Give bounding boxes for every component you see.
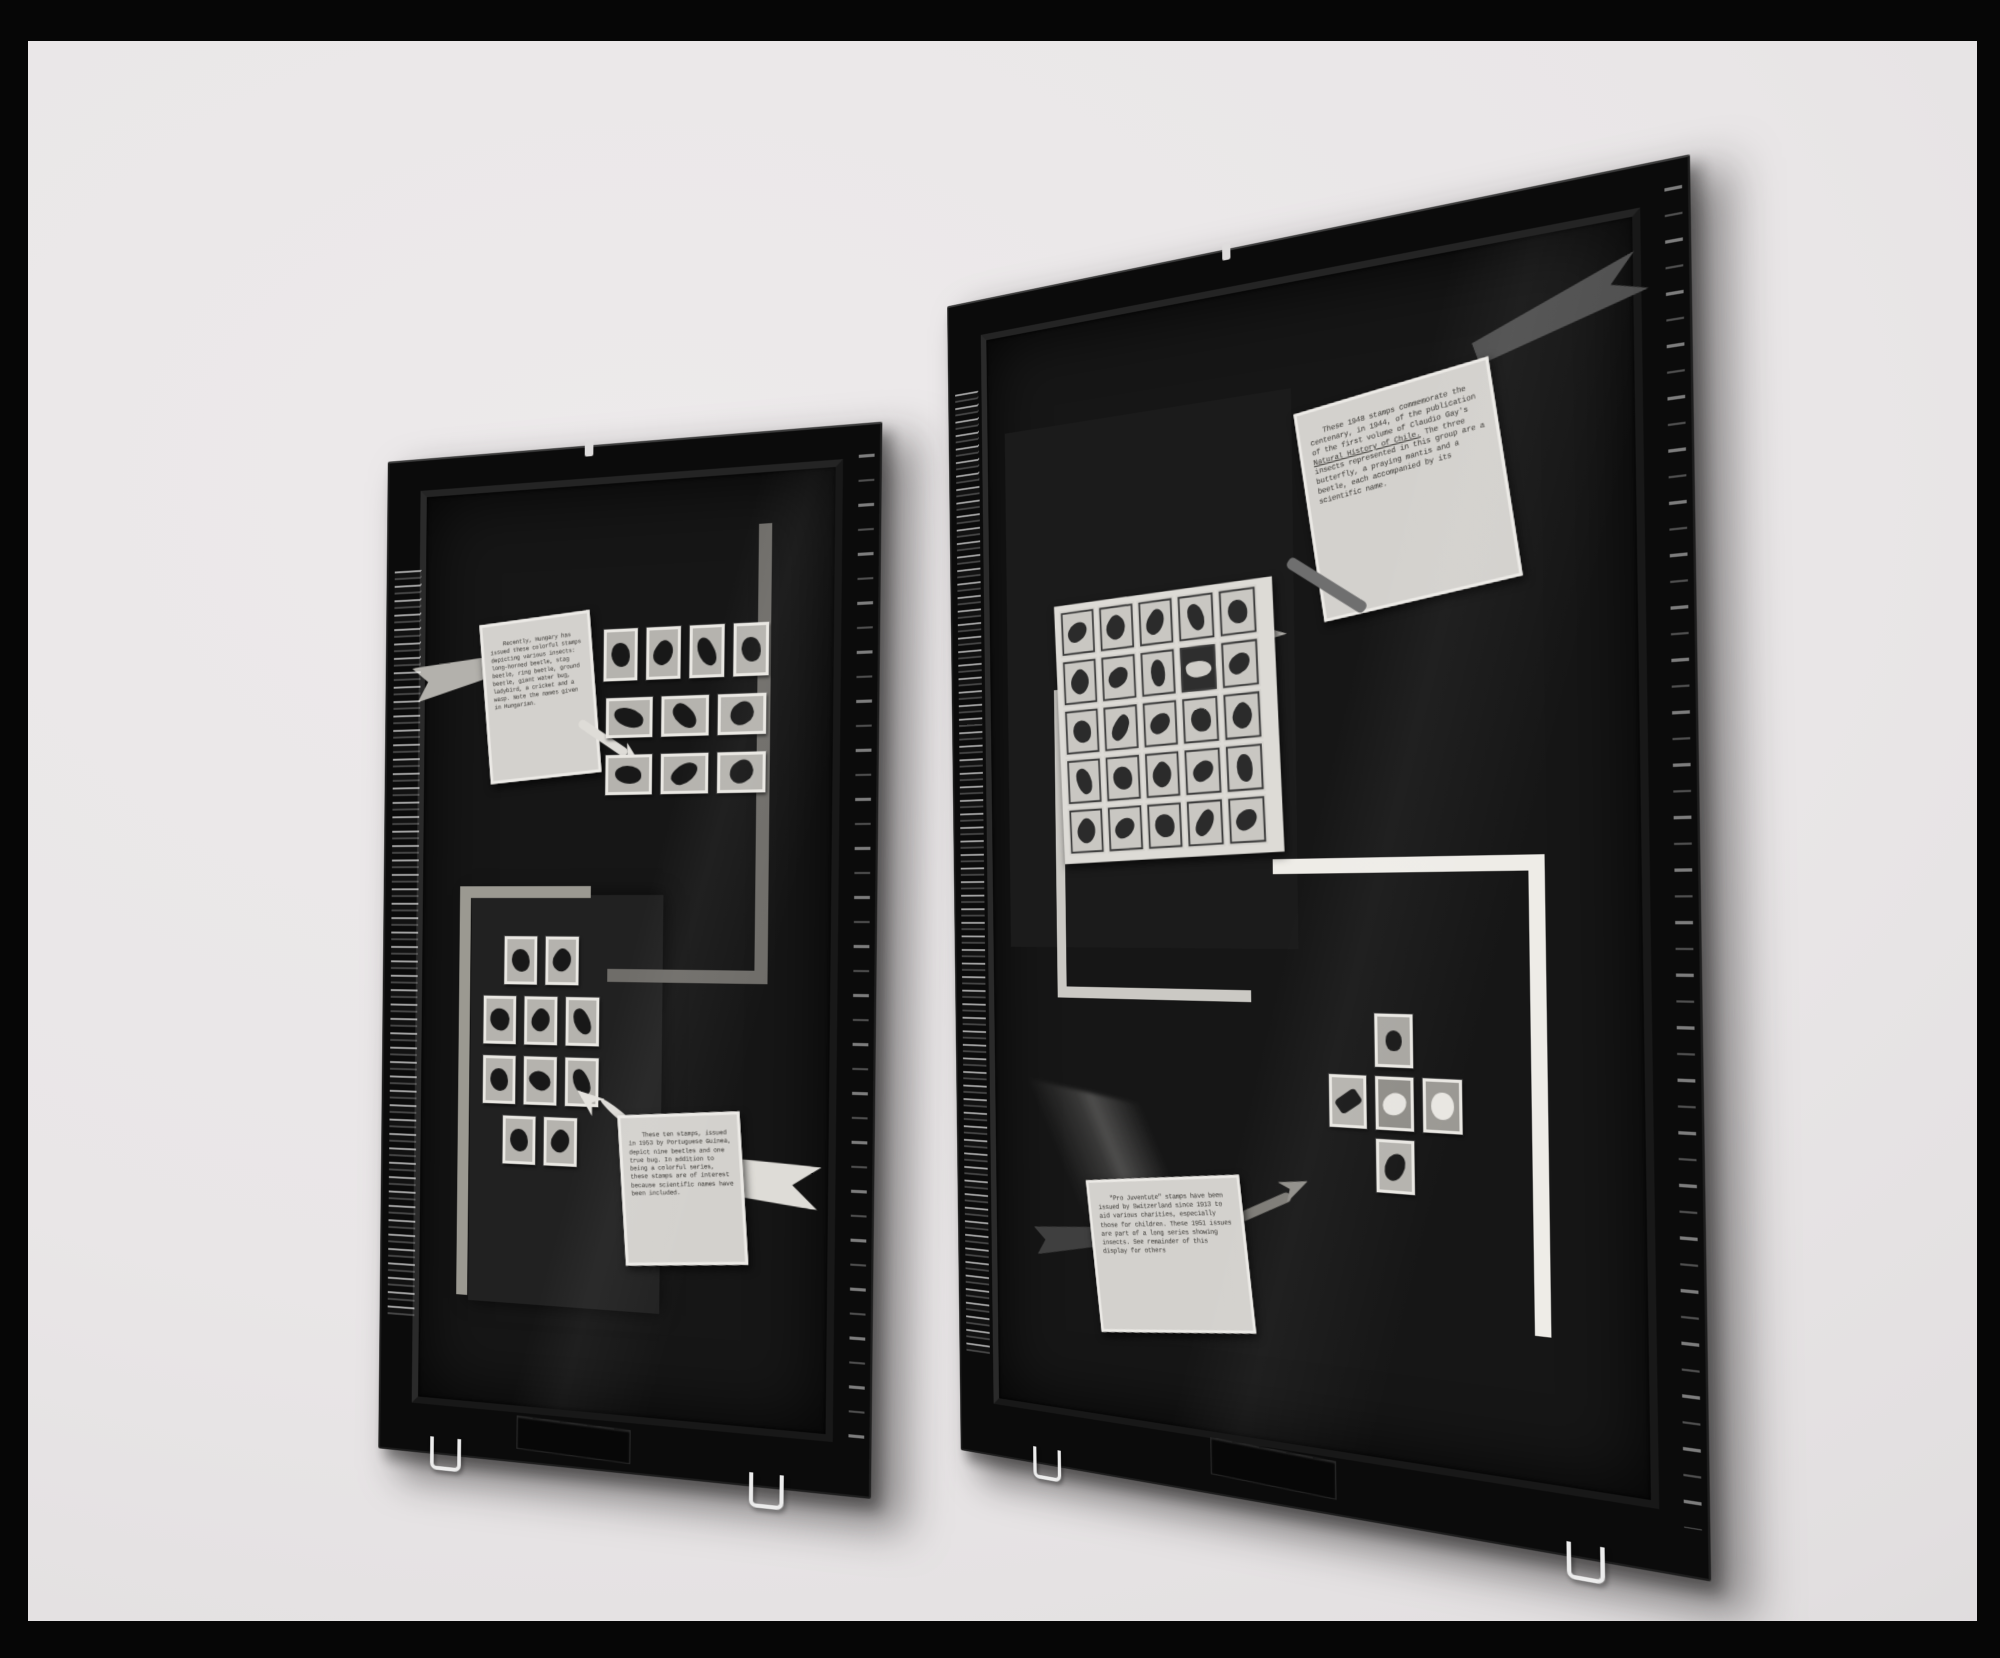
stamp-motif	[1380, 1150, 1410, 1184]
stamp-image	[1187, 799, 1224, 846]
stamp	[1097, 601, 1135, 653]
stamp-image	[1182, 696, 1219, 744]
stamp-motif	[1191, 707, 1211, 732]
stamp	[1104, 753, 1143, 804]
stamp-motif	[512, 949, 530, 971]
stamp-motif	[1113, 766, 1132, 790]
stamp-motif	[1105, 664, 1131, 692]
stamp	[1065, 756, 1103, 806]
stamp	[660, 753, 708, 795]
stamp	[1068, 806, 1106, 855]
stamp-motif	[1333, 1088, 1362, 1115]
stamp	[524, 996, 557, 1045]
stamp	[483, 996, 516, 1045]
caption-text: These 1948 stamps commemorate the centen…	[1309, 382, 1491, 509]
stamp-image	[1379, 1142, 1412, 1192]
caption-card-hungary: Recently, Hungary has issued these color…	[479, 610, 601, 785]
stamp-motif	[1184, 601, 1209, 633]
stamp-row	[483, 1055, 599, 1107]
stamp-row	[483, 996, 599, 1047]
stamp-image	[720, 696, 763, 732]
stamp-image	[1105, 755, 1140, 801]
stamp-image	[1138, 598, 1174, 646]
stamp-motif	[1155, 814, 1175, 838]
stamp-image	[1140, 649, 1176, 697]
stamp-image	[486, 1058, 513, 1101]
stamp-image	[664, 698, 706, 734]
stamp-motif	[547, 1127, 574, 1156]
stamp	[565, 997, 599, 1046]
stamp	[1217, 584, 1258, 638]
stamp-motif	[615, 766, 642, 784]
frame-reflection	[848, 454, 874, 1446]
stamp-motif	[487, 1006, 512, 1033]
stamp-motif	[1189, 757, 1216, 785]
stamp-motif	[526, 1066, 553, 1095]
stamp-motif	[548, 946, 575, 975]
caption-card-pro-juventute: "Pro Juventute" stamps have been issued …	[1086, 1175, 1257, 1334]
stamp	[1145, 800, 1185, 851]
stamp	[1376, 1139, 1415, 1195]
stamp	[689, 624, 724, 678]
stamp-image	[663, 756, 705, 791]
stamp	[545, 936, 579, 985]
stamp-image	[1063, 659, 1097, 706]
stamp-motif	[1185, 657, 1212, 680]
stamp-image	[1180, 644, 1217, 693]
stamp-motif	[490, 1068, 508, 1090]
stamp-row	[605, 751, 766, 795]
stamp	[1099, 652, 1138, 704]
stamp	[716, 751, 765, 793]
stamp	[504, 936, 537, 985]
stamp	[1423, 1078, 1463, 1135]
stamp-motif	[1228, 700, 1257, 731]
stamp	[1374, 1013, 1413, 1068]
stamp-motif	[1073, 766, 1096, 796]
stamp-image	[507, 939, 534, 982]
stamp-motif	[510, 1129, 528, 1152]
hanging-hook	[430, 1436, 461, 1472]
stamp-image	[548, 939, 576, 982]
stamp-motif	[1147, 710, 1174, 738]
stamp-motif	[1142, 607, 1169, 638]
stamp-image	[1226, 744, 1264, 792]
stamp-image	[1061, 609, 1095, 656]
stamp	[717, 693, 766, 735]
stamp-image	[1145, 751, 1181, 798]
stamp-image	[608, 757, 649, 792]
stamp-image	[1219, 587, 1257, 637]
stamp-group-portuguese-guinea	[482, 936, 600, 1168]
accent-line	[460, 886, 591, 898]
stamp-motif	[1227, 599, 1248, 625]
caption-card-portuguese-guinea: These ten stamps, issued in 1953 by Port…	[617, 1111, 748, 1265]
stamp-image	[1147, 802, 1183, 849]
stamp-motif	[1112, 815, 1138, 842]
stamp	[524, 1056, 557, 1105]
stamp-row	[605, 693, 766, 739]
stamp-motif	[668, 757, 700, 789]
stamp-motif	[1380, 1088, 1409, 1119]
frame-nameplate	[516, 1415, 630, 1464]
stamp	[661, 695, 709, 737]
hanging-hook	[1566, 1541, 1605, 1585]
accent-line	[1058, 986, 1252, 1002]
stamp	[1143, 749, 1183, 800]
stamp	[1178, 642, 1219, 695]
stamp-image	[1178, 592, 1215, 641]
stamp	[1141, 698, 1181, 750]
stamp	[1219, 637, 1261, 691]
stamp-motif	[693, 634, 720, 667]
stamp-image	[1099, 604, 1134, 652]
stamp	[605, 754, 652, 795]
stamp-motif	[612, 706, 646, 730]
stamp	[1185, 797, 1226, 848]
stamp	[1136, 596, 1175, 649]
stamp-motif	[668, 700, 700, 731]
hanging-hook	[1033, 1446, 1061, 1482]
hanging-clip	[1222, 243, 1230, 260]
stamp-motif	[1108, 712, 1134, 743]
stamp	[1176, 590, 1216, 643]
board-left-mat: Recently, Hungary has issued these color…	[418, 467, 836, 1434]
stamp-motif	[725, 757, 756, 788]
stamp-image	[1185, 747, 1222, 795]
stamp-group-pro-juventute	[1328, 1012, 1464, 1199]
stamp-motif	[741, 637, 761, 662]
stamp-motif	[1431, 1092, 1453, 1120]
frame-reflection	[1664, 185, 1702, 1531]
ribbon-arrow-icon	[1469, 251, 1650, 372]
stamp-motif	[527, 1006, 554, 1035]
caption-text: These ten stamps, issued in 1953 by Port…	[628, 1129, 734, 1199]
accent-line	[1528, 854, 1551, 1338]
stamp	[1222, 689, 1264, 742]
stamp-motif	[1236, 754, 1253, 783]
stamp	[483, 1055, 516, 1104]
stamp-image	[692, 627, 721, 675]
stamp-motif	[1149, 760, 1177, 791]
stamp-image	[649, 629, 678, 677]
stamp-image	[720, 754, 763, 790]
accent-line	[607, 969, 767, 984]
stamp	[544, 1117, 578, 1167]
stamp-image	[736, 625, 766, 673]
stamp-motif	[1067, 667, 1093, 697]
display-board-right: These 1948 stamps commemorate the centen…	[947, 154, 1711, 1581]
stamp-image	[608, 700, 649, 735]
stamp-image	[606, 631, 634, 678]
caption-text: "Pro Juventute" stamps have been issued …	[1097, 1192, 1236, 1257]
stamp-motif	[1103, 613, 1130, 643]
hanging-clip	[585, 440, 594, 457]
stamp-motif	[1385, 1030, 1402, 1051]
stamp-image	[1378, 1079, 1411, 1128]
display-board-left: Recently, Hungary has issued these color…	[378, 422, 882, 1499]
stamp	[1329, 1074, 1367, 1129]
stamp-image	[1228, 796, 1266, 844]
stamp-row	[502, 1115, 577, 1167]
stamp-motif	[1073, 816, 1099, 846]
stamp-motif	[1233, 806, 1261, 834]
stamp	[1226, 794, 1268, 846]
stamp	[646, 626, 681, 680]
stamp-group-hungary	[602, 622, 769, 796]
stamp-row	[603, 622, 769, 682]
stamp	[1138, 647, 1178, 699]
accent-line	[1273, 854, 1545, 874]
stamp-image	[505, 1118, 532, 1161]
stamp-image	[1221, 639, 1259, 688]
stamp-motif	[1073, 720, 1092, 744]
stamp-image	[546, 1120, 574, 1164]
stamp-image	[1065, 708, 1099, 754]
stamp-image	[1067, 758, 1101, 804]
stamp-image	[1332, 1077, 1364, 1126]
stamp-motif	[570, 1006, 595, 1037]
stamp-row	[504, 936, 579, 985]
stamp-image	[486, 999, 513, 1042]
stamp	[1183, 745, 1224, 797]
caption-text: Recently, Hungary has issued these color…	[490, 630, 587, 713]
stamp	[1181, 694, 1222, 746]
stamp-image	[568, 1000, 596, 1043]
stamp	[1061, 657, 1099, 708]
stamp	[733, 622, 769, 677]
stamp	[603, 628, 637, 682]
stamp	[1106, 803, 1145, 853]
stamp	[1063, 706, 1101, 756]
stamp-image	[1377, 1017, 1410, 1066]
stamp	[1224, 741, 1266, 794]
photograph: Recently, Hungary has issued these color…	[28, 41, 1977, 1621]
stamp	[605, 697, 652, 739]
frame-reflection	[955, 391, 990, 1355]
stamp-image	[1108, 805, 1143, 851]
stamp-motif	[1192, 807, 1219, 838]
stamp-image	[1101, 654, 1136, 701]
stamp	[502, 1115, 535, 1165]
stamp-motif	[726, 699, 757, 730]
stamp-sheet-chile	[1054, 576, 1285, 864]
stamp	[1101, 702, 1140, 753]
stamp	[1375, 1076, 1414, 1132]
board-right-mat: These 1948 stamps commemorate the centen…	[986, 217, 1651, 1500]
frame-reflection	[388, 570, 422, 1322]
stamp-image	[1103, 704, 1138, 751]
stamp-motif	[649, 638, 678, 669]
hanging-hook	[749, 1472, 784, 1510]
stamp-image	[1142, 700, 1178, 748]
stamp-image	[1069, 808, 1103, 853]
stamp-motif	[1065, 619, 1090, 646]
stamp-image	[1426, 1081, 1460, 1131]
stamp-motif	[1150, 659, 1166, 687]
stamp-image	[526, 1059, 554, 1102]
stamp-motif	[611, 643, 630, 668]
stamp	[1059, 607, 1097, 658]
stamp-image	[1224, 691, 1262, 740]
stamp-motif	[1226, 649, 1254, 678]
stamp-image	[527, 999, 555, 1042]
